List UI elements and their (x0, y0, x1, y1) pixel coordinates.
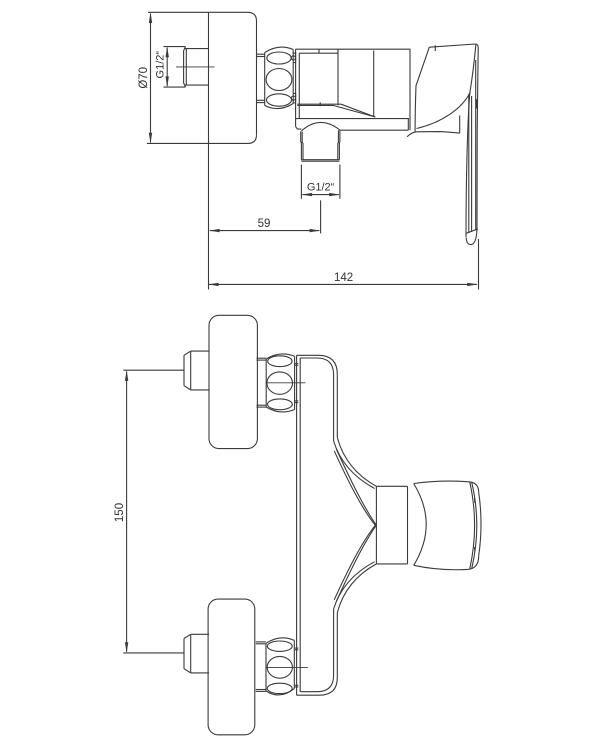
svg-text:59: 59 (258, 218, 271, 230)
svg-text:142: 142 (334, 272, 353, 284)
svg-text:G1/2“: G1/2“ (155, 51, 167, 79)
svg-text:150: 150 (114, 503, 126, 522)
svg-text:G1/2“: G1/2“ (307, 182, 335, 194)
svg-text:Ø70: Ø70 (138, 67, 150, 89)
